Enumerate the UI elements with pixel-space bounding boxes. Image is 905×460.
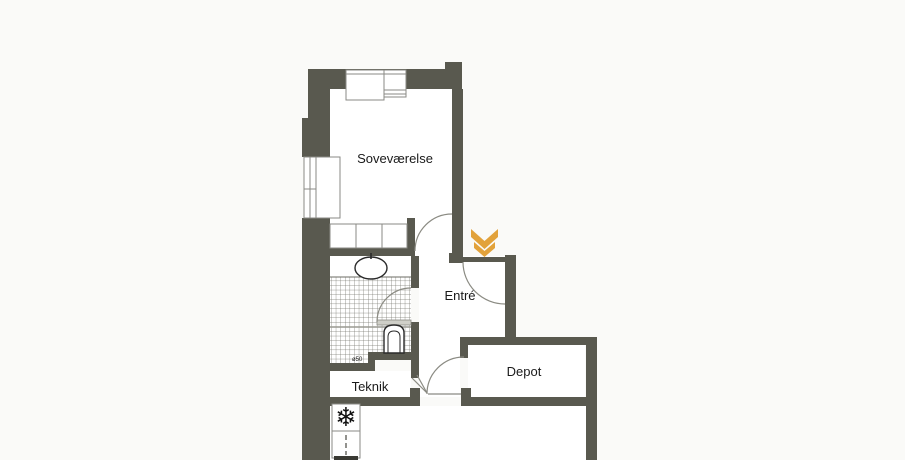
depot-right-wall xyxy=(586,337,597,460)
room-label-entre: Entré xyxy=(444,288,475,303)
bottom-wall-left-stub xyxy=(410,388,420,397)
wardrobe xyxy=(330,224,407,248)
floor-drain-label: ø50 xyxy=(352,357,363,363)
bedroom-south-wall xyxy=(330,248,415,256)
entre-right-wall xyxy=(505,255,516,337)
appliance-edge xyxy=(334,456,358,460)
bedroom-right-wall xyxy=(452,89,463,255)
left-window-reveal xyxy=(316,157,340,218)
left-wall-lower xyxy=(302,218,330,460)
freezer-snowflake-icon: ❄ xyxy=(335,403,357,433)
bedroom-door-opening xyxy=(415,248,452,256)
room-label-depot: Depot xyxy=(507,364,542,379)
bathroom-door-leaf xyxy=(377,320,411,325)
sink xyxy=(355,257,387,279)
bedroom-door-stub xyxy=(407,218,415,249)
depot-west-stub xyxy=(460,345,468,358)
top-wall-right-step xyxy=(445,62,462,89)
left-wall-upper xyxy=(308,69,330,118)
bottom-wall-right xyxy=(461,397,592,406)
toilet xyxy=(384,325,404,353)
bathroom-east-wall-lower xyxy=(411,322,419,355)
floorplan-canvas: ❄ Soveværelse Entré Teknik Depot ø50 xyxy=(0,0,905,460)
depot-top-wall xyxy=(460,337,592,345)
front-door-leaf xyxy=(463,257,505,262)
room-label-sovevaerelse: Soveværelse xyxy=(357,151,433,166)
lower-room-floor xyxy=(330,406,586,460)
bathroom-east-wall-upper xyxy=(411,256,419,288)
left-wall-window-pier-upper xyxy=(302,118,330,157)
bathroom-south-wall-left xyxy=(330,363,375,371)
bedroom-right-wall-foot xyxy=(449,253,463,263)
room-label-teknik: Teknik xyxy=(352,379,389,394)
floorplan-svg: ❄ Soveværelse Entré Teknik Depot ø50 xyxy=(0,0,905,460)
bottom-wall-right-stub xyxy=(461,388,471,397)
